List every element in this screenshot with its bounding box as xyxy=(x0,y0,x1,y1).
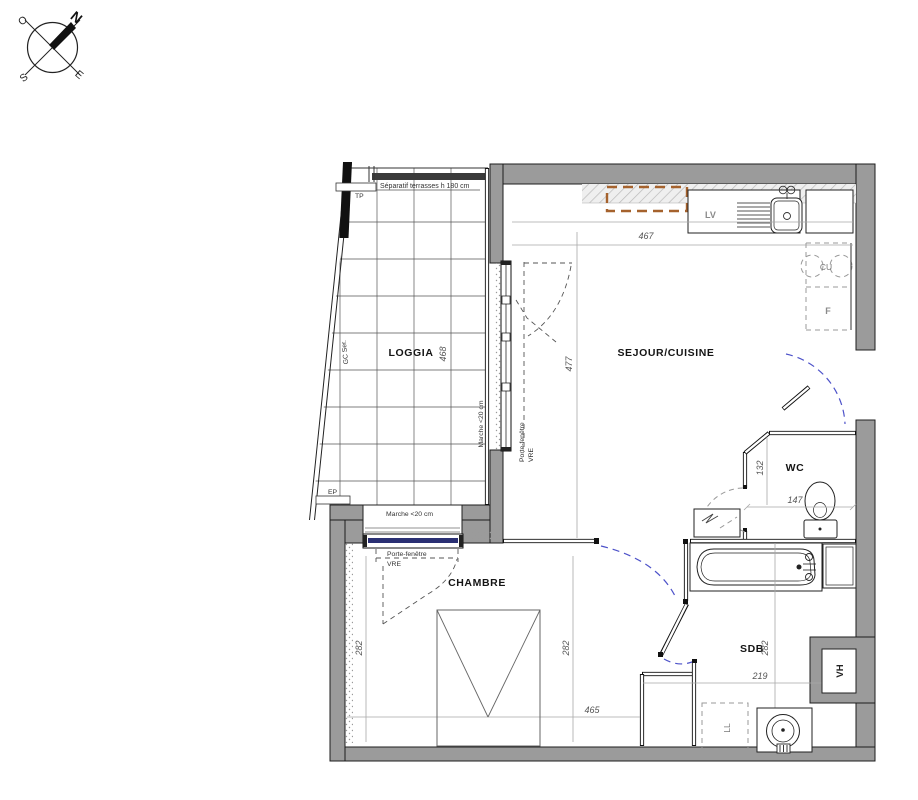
washbasin-icon xyxy=(757,708,812,753)
loggia-railing xyxy=(372,173,488,180)
loggia-label: LOGGIA xyxy=(388,347,433,359)
wc-dim-147: 147 xyxy=(787,495,803,505)
ep-downpipe: EP xyxy=(316,489,350,504)
sejour-label: SEJOUR/CUISINE xyxy=(617,347,714,359)
chambre-dim-282-left: 282 xyxy=(354,640,364,656)
chambre-label: CHAMBRE xyxy=(448,577,506,589)
dishwasher-label: LV xyxy=(705,210,716,220)
wc-label: WC xyxy=(786,462,805,474)
compass-east-label: E xyxy=(72,68,85,82)
gc-ser-label: GC Ser. xyxy=(341,340,351,365)
compass-needle-icon xyxy=(49,22,76,50)
sejour-dim-477: 477 xyxy=(564,356,574,372)
fridge-label: F xyxy=(825,306,831,316)
chambre-door-swing xyxy=(601,546,676,598)
floor-plan-drawing: N O S E xyxy=(0,0,918,800)
compass-south-label: S xyxy=(17,71,30,85)
toilet-icon xyxy=(804,482,837,538)
bed-icon xyxy=(437,610,540,746)
chambre-pf-label: Porte-fenêtre xyxy=(387,551,427,558)
vh-label: VH xyxy=(835,664,846,677)
loggia-dim-468: 468 xyxy=(438,346,448,361)
chambre-porte-fenetre-annotation: Porte-fenêtre VRE xyxy=(376,549,458,624)
wc-dim-132: 132 xyxy=(755,460,765,475)
washing-machine-slot: LL xyxy=(702,703,748,749)
cooktop-label: CU xyxy=(820,262,832,272)
loggia-step: Marche <20 cm xyxy=(363,505,462,536)
room-chambre: CHAMBRE Porte-fenêtre VRE 282 282 465 xyxy=(347,546,676,746)
room-wc: WC 132 147 xyxy=(694,437,856,538)
compass-west-label: O xyxy=(16,14,30,28)
sdb-dim-219: 219 xyxy=(751,671,767,681)
electrical-panel-icon xyxy=(694,509,740,537)
floor-plan-page: N O S E xyxy=(0,0,918,800)
sdb-dim-282: 282 xyxy=(760,640,770,656)
separator-note: Séparatif terrasses h 180 cm xyxy=(380,183,470,190)
kitchen-zone: LV CU F xyxy=(582,184,856,330)
bathtub-icon xyxy=(690,543,822,591)
kitchen-counter-right xyxy=(806,190,853,233)
sejour-dim-467: 467 xyxy=(638,231,654,241)
compass-rose: N O S E xyxy=(16,8,86,85)
entrance-door-swing xyxy=(786,354,845,424)
sejour-pf-label: Porte-fenêtre xyxy=(519,422,526,462)
vh-duct: VH xyxy=(822,649,856,693)
chambre-pf-type: VRE xyxy=(387,561,401,568)
room-loggia: Séparatif terrasses h 180 cm TP GC Ser. … xyxy=(305,162,490,536)
chambre-dim-282-right: 282 xyxy=(561,640,571,656)
chambre-window xyxy=(363,534,463,548)
marche-note-vertical: Marche <20 cm xyxy=(478,400,485,447)
sejour-pf-type: VRE xyxy=(528,448,535,462)
sejour-window xyxy=(501,261,511,451)
tp-label: TP xyxy=(355,193,364,200)
cooktop-slot: CU xyxy=(801,243,852,330)
terrace-separator: Séparatif terrasses h 180 cm xyxy=(336,183,480,191)
chambre-dim-465: 465 xyxy=(584,705,600,715)
washing-machine-label: LL xyxy=(722,723,732,733)
marche-note-horizontal: Marche <20 cm xyxy=(386,511,433,518)
vanity-icon xyxy=(823,544,856,588)
ep-label: EP xyxy=(328,489,338,496)
loggia-tile-grid xyxy=(305,168,490,505)
sdb-door-swing xyxy=(664,659,692,664)
drainboard-icon xyxy=(737,203,770,227)
